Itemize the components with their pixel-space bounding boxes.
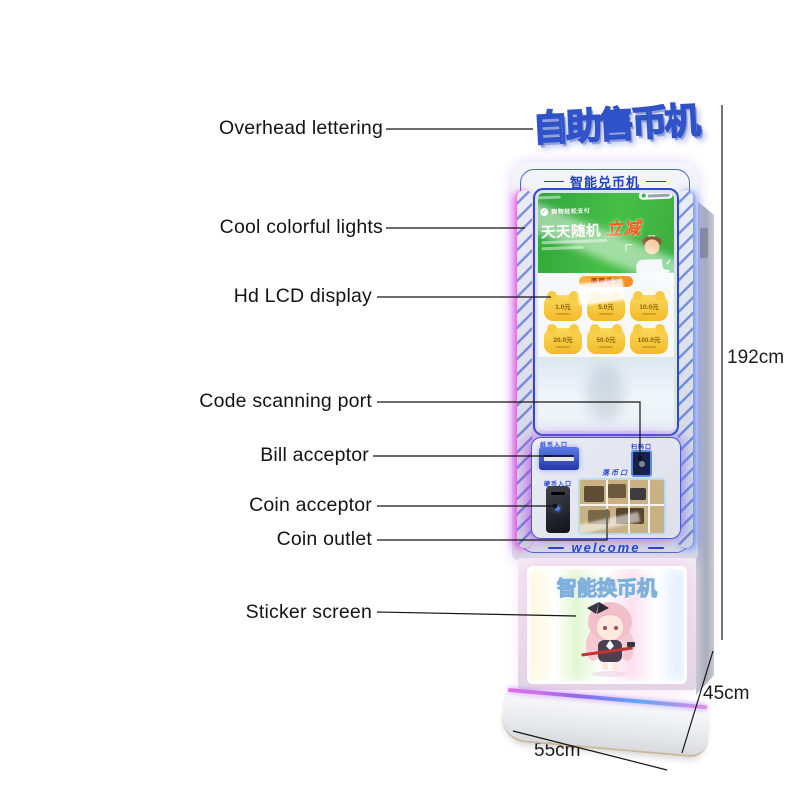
welcome-text: welcome [572, 540, 641, 555]
screen-reflection-area [538, 357, 674, 431]
scanner-glint [639, 461, 645, 467]
code-scanning-port-device [631, 450, 652, 477]
label-coin-outlet: Coin outlet [277, 528, 372, 551]
amount-subtext-bar [642, 346, 656, 349]
welcome-dash-left [548, 547, 564, 549]
amount-button: 20.0元 [544, 328, 582, 354]
coin-cluster [630, 488, 646, 500]
outlet-divider [648, 480, 650, 533]
amount-subtext-bar [556, 313, 570, 316]
welcome-row: welcome [531, 540, 681, 555]
led-light-column-left [517, 190, 532, 548]
label-bill-acceptor: Bill acceptor [260, 444, 369, 467]
amount-value: 20.0元 [553, 334, 572, 344]
dimension-depth: 45cm [703, 683, 749, 705]
amount-value: 100.0元 [638, 334, 661, 344]
amount-subtext-bar [642, 313, 656, 316]
coin-acceptor-led-icon [555, 506, 560, 511]
header-dash-right [646, 181, 666, 182]
coin-acceptor-device [546, 486, 570, 533]
pay-logo-dot-icon [642, 194, 646, 198]
amount-button-grid: 1.0元 5.0元 10.0元 20.0元 50.0元 100.0元 [538, 295, 674, 354]
machine-base [500, 689, 712, 759]
pay-logo-badge [639, 193, 673, 200]
dimension-height: 192cm [727, 347, 784, 369]
amount-button: 1.0元 [544, 295, 582, 321]
lcd-screen: ✓ 购物轻松支付 天天随机 立减 ✓ 面额选择 1.0元 5.0元 [538, 193, 674, 431]
coin-cluster [584, 486, 604, 502]
anime-girl-illustration [563, 594, 657, 682]
amount-value: 10.0元 [639, 301, 658, 311]
header-dash-left [544, 181, 564, 182]
product-diagram: Overhead lettering Cool colorful lights … [0, 0, 800, 800]
amount-value: 5.0元 [598, 301, 614, 311]
amount-button: 50.0元 [587, 328, 625, 354]
label-lcd-display: Hd LCD display [234, 285, 372, 308]
label-coin-acceptor: Coin acceptor [249, 494, 372, 517]
machine-side-panel [696, 200, 714, 695]
side-seam [700, 228, 708, 258]
base-led-strip [508, 688, 707, 709]
coin-slot [551, 492, 565, 495]
pay-logo-text-bar [648, 193, 670, 197]
reflection-blob [586, 365, 624, 421]
amount-value: 1.0元 [555, 301, 571, 311]
bill-acceptor-device [539, 447, 579, 470]
label-overhead-lettering: Overhead lettering [219, 117, 383, 140]
coin-cluster [608, 484, 626, 498]
outlet-divider [628, 480, 630, 533]
welcome-dash-right [648, 547, 664, 549]
machine-overhead-sign: 自助售币机 [519, 91, 711, 153]
label-code-scanning-port: Code scanning port [199, 390, 372, 413]
label-sticker-screen: Sticker screen [246, 601, 372, 624]
ports-panel: 纸币入口 扫码口 硬币入口 落币口 [531, 437, 681, 539]
amount-button: 10.0元 [630, 295, 668, 321]
amount-subtext-bar [599, 346, 613, 349]
bill-slot [544, 455, 574, 461]
amount-subtext-bar [556, 346, 570, 349]
coin-outlet-window [578, 478, 666, 535]
amount-button: 100.0元 [630, 328, 668, 354]
label-colorful-lights: Cool colorful lights [220, 216, 383, 239]
outlet-divider [580, 504, 664, 506]
coin-outlet-label: 落币口 [602, 468, 629, 478]
banner-topleft-text-bar [538, 196, 561, 200]
amount-value: 50.0元 [596, 334, 615, 344]
amount-subtext-bar [599, 313, 613, 316]
sticker-screen-panel: 智能换币机 [527, 566, 687, 684]
